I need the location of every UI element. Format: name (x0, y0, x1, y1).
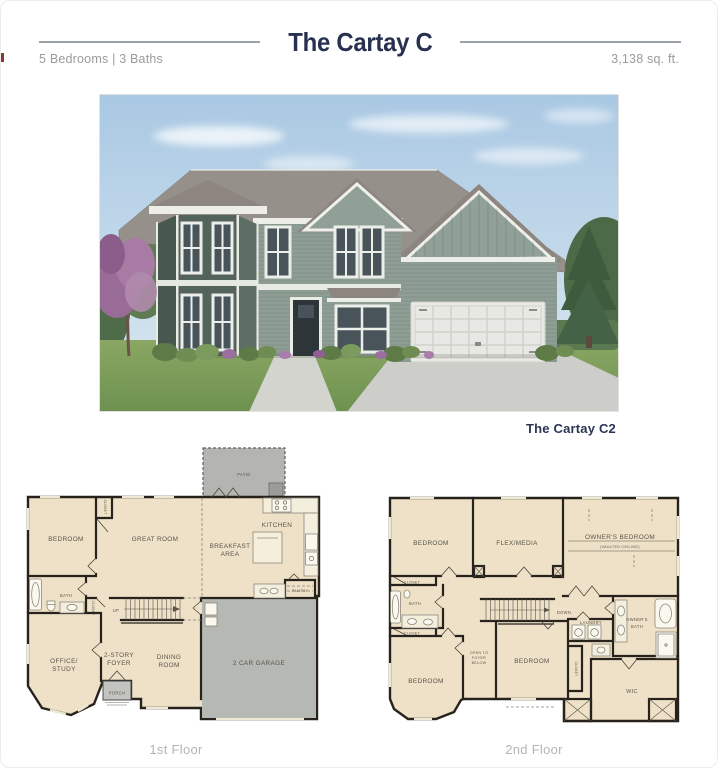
room-label-vaulted: (VAULTED CEILING) (600, 545, 640, 549)
house-rendering (99, 94, 619, 412)
garage-area (202, 599, 316, 718)
edge-artifact (1, 53, 4, 62)
room-label-bedroom-center: BEDROOM (514, 658, 549, 665)
front-window (336, 306, 388, 352)
porch-roof (327, 288, 401, 302)
room-label-foyer: 2-STORY (104, 652, 134, 659)
room-label-closet-mid: CLOSET (404, 632, 421, 636)
flyer-page: The Cartay C 5 Bedrooms | 3 Baths 3,138 … (0, 0, 718, 768)
room-label-closet-wardrobe: CLOSET (103, 500, 107, 515)
sqft-text: 3,138 sq. ft. (611, 52, 679, 66)
upper-window-pair-1 (335, 227, 357, 277)
room-label-bedroom-top: BEDROOM (413, 540, 448, 547)
room-label-dining: DINING (157, 654, 181, 661)
room-label-bath2: BATH (409, 601, 421, 606)
house-caption: The Cartay C2 (526, 421, 616, 436)
room-label-great-room: GREAT ROOM (132, 536, 179, 543)
bay-upper-window-2 (213, 223, 232, 273)
fridge (306, 534, 318, 550)
room-label-dining-2: ROOM (158, 662, 179, 669)
room-label-pantry: PANTRY (292, 589, 309, 593)
beds-baths-text: 5 Bedrooms | 3 Baths (39, 52, 163, 66)
upper-window-pair-2 (361, 227, 383, 277)
floor1-caption: 1st Floor (26, 742, 326, 757)
front-door (290, 297, 322, 356)
title-rule-right (460, 41, 681, 43)
room-label-up: UP (113, 608, 119, 613)
floorplan-1st: PATIO BEDROOM CLOSET GREAT ROOM BREAKFAS… (26, 446, 326, 726)
room-label-closet-top: CLOSET (404, 581, 421, 585)
room-label-open-2: FOYER (472, 656, 486, 660)
room-label-office-2: STUDY (52, 666, 76, 673)
room-label-garage: 2 CAR GARAGE (233, 660, 285, 667)
bay-lower-window-2 (213, 295, 232, 350)
oven (306, 552, 318, 565)
room-label-bath: BATH (60, 593, 72, 598)
room-label-bedroom: BEDROOM (48, 536, 83, 543)
room-label-flex-media: FLEX/MEDIA (496, 540, 538, 547)
room-label-owners-bath-1: OWNER'S (626, 617, 648, 622)
room-label-open-3: BELOW (472, 661, 487, 665)
room-label-open-1: OPEN TO (470, 651, 489, 655)
floor2-caption: 2nd Floor (386, 742, 682, 757)
room-label-kitchen: KITCHEN (262, 522, 293, 529)
room-label-closet-vert: CLOSET (574, 662, 578, 677)
room-label-foyer-2: FOYER (107, 660, 131, 667)
garage-utilities (205, 603, 217, 626)
room-label-owners-bedroom: OWNER'S BEDROOM (585, 534, 655, 541)
room-label-down: DOWN (557, 610, 571, 615)
room-label-breakfast: BREAKFAST (210, 543, 251, 550)
bay-tower (149, 180, 267, 356)
grill (269, 483, 283, 496)
room-label-owners-bath-2: BATH (631, 624, 643, 629)
upper-window-left (266, 227, 290, 277)
island (253, 532, 282, 563)
floorplan-2nd: BEDROOM FLEX/MEDIA OWNER'S BEDROOM (VAUL… (386, 481, 682, 731)
title-rule-left (39, 41, 260, 43)
room-label-porch: PORCH (109, 691, 126, 696)
room-label-closet-understair: CLOSET (91, 601, 95, 616)
room-label-office: OFFICE/ (50, 658, 78, 665)
room-label-wic: WIC (626, 689, 638, 695)
room-label-patio: PATIO (237, 472, 250, 477)
floor2-outline (390, 498, 678, 721)
room-label-laundry: LAUNDRY (580, 620, 602, 625)
bay-lower-window-1 (182, 295, 201, 350)
room-label-bedroom-left: BEDROOM (408, 678, 443, 685)
room-label-breakfast-2: AREA (221, 551, 240, 558)
page-title: The Cartay C (288, 27, 432, 58)
bay-upper-window-1 (182, 223, 201, 273)
